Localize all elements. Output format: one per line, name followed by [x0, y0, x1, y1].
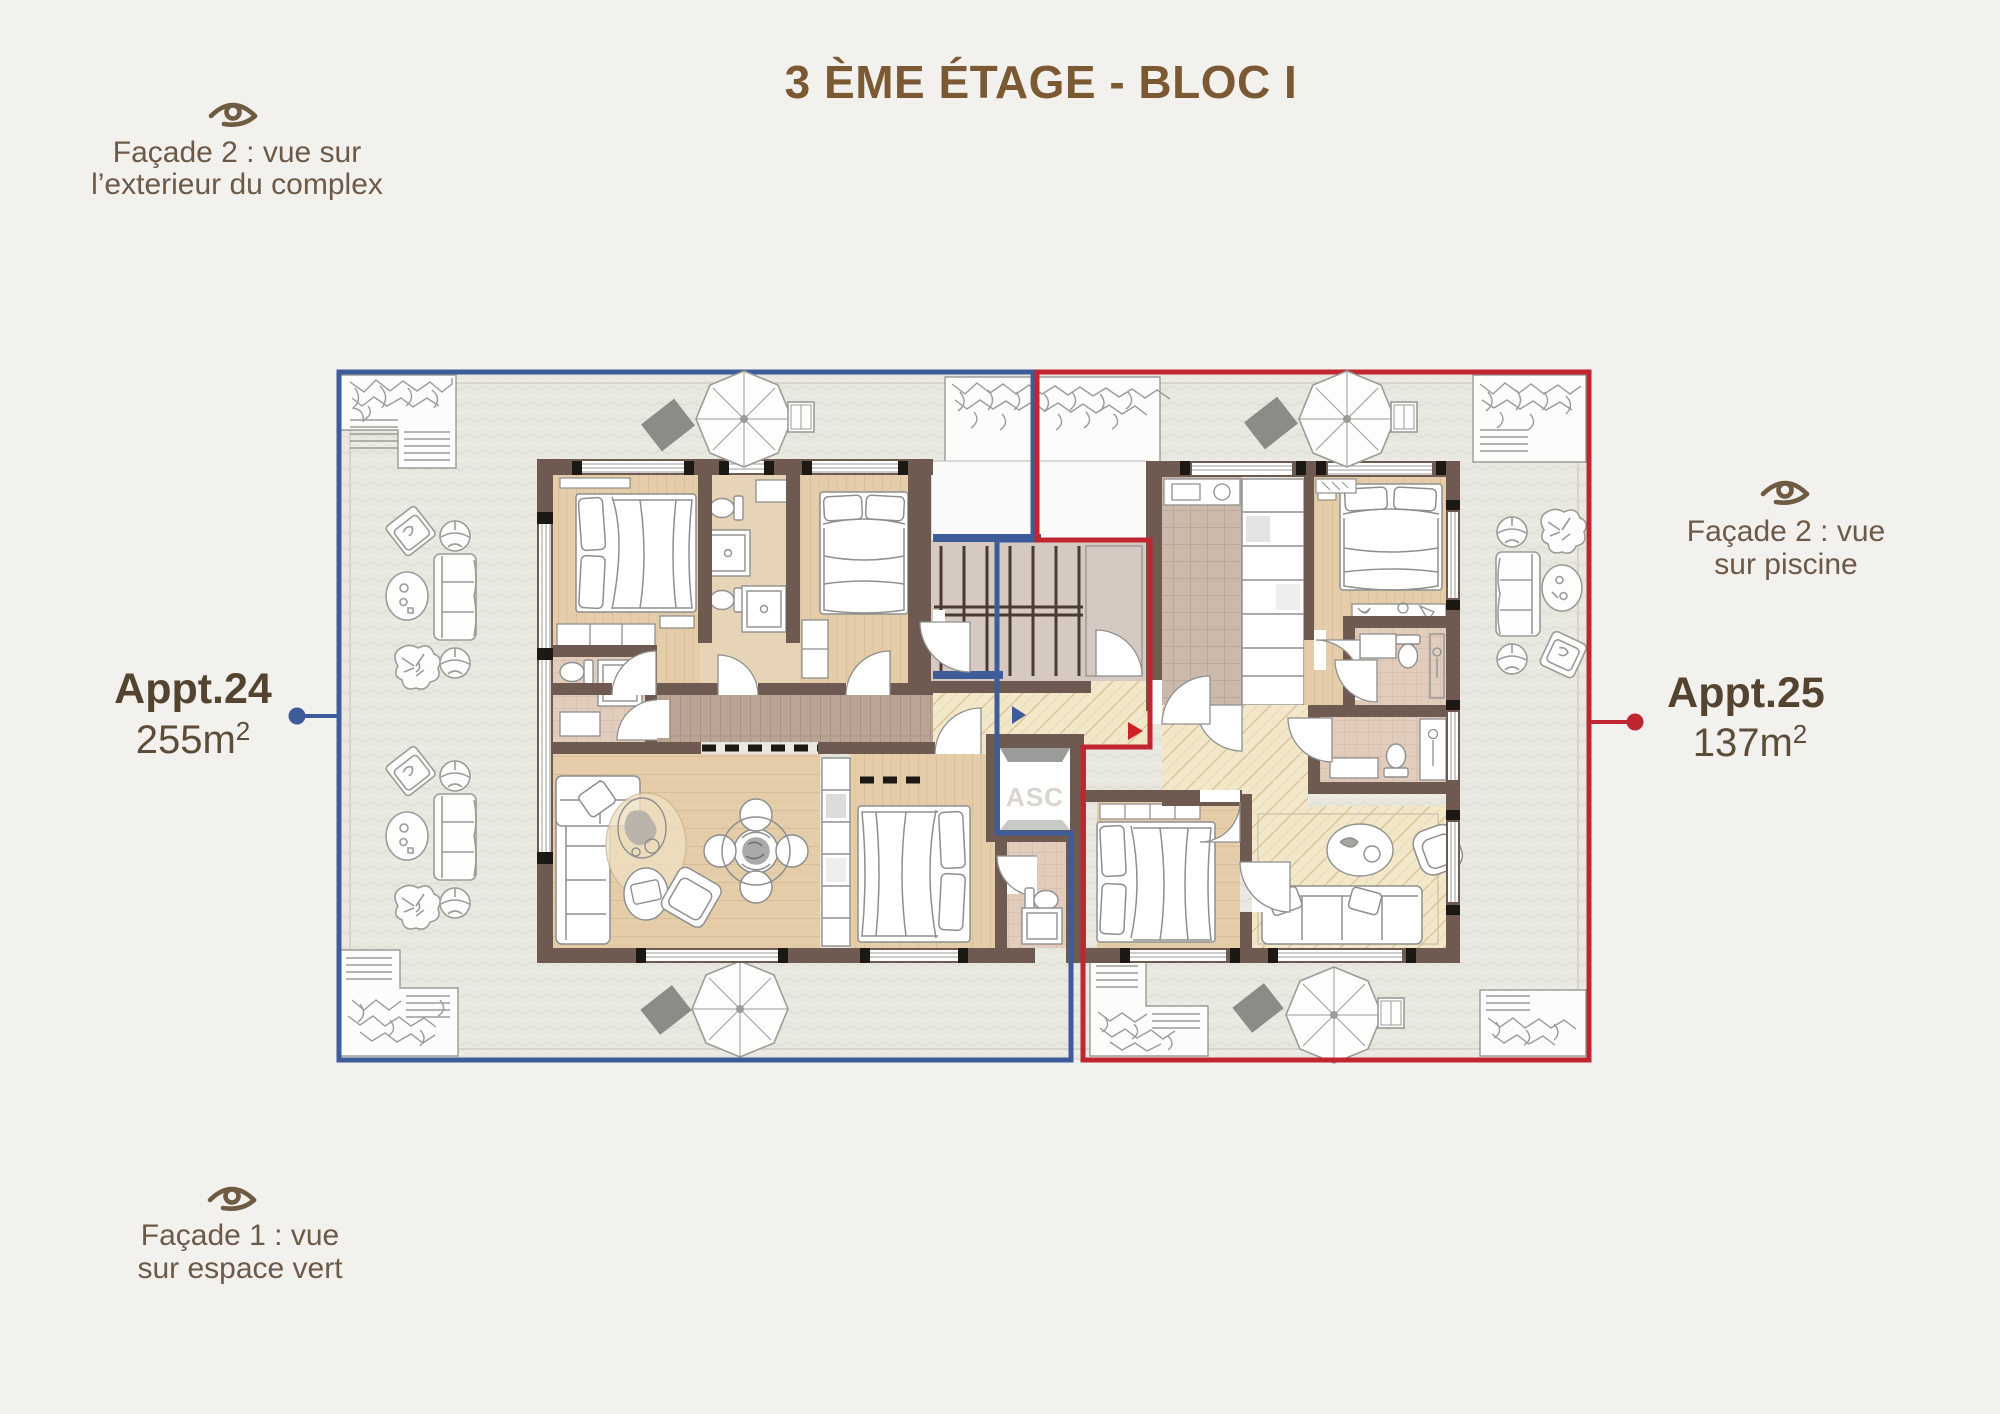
svg-text:137m2: 137m2 — [1693, 719, 1808, 765]
svg-text:Appt.24: Appt.24 — [114, 665, 272, 713]
svg-text:sur piscine: sur piscine — [1714, 548, 1857, 581]
svg-text:sur espace vert: sur espace vert — [137, 1252, 343, 1285]
svg-text:Façade 2 : vue: Façade 2 : vue — [1687, 515, 1885, 548]
svg-text:ASC: ASC — [1006, 782, 1064, 812]
svg-text:l’exterieur du complex: l’exterieur du complex — [91, 168, 383, 201]
svg-text:255m2: 255m2 — [136, 716, 251, 762]
svg-text:Façade 2 : vue sur: Façade 2 : vue sur — [113, 136, 361, 169]
svg-text:Façade 1 : vue: Façade 1 : vue — [141, 1219, 339, 1252]
svg-text:3 ÈME ÉTAGE - BLOC I: 3 ÈME ÉTAGE - BLOC I — [785, 56, 1298, 108]
svg-text:Appt.25: Appt.25 — [1667, 669, 1825, 717]
